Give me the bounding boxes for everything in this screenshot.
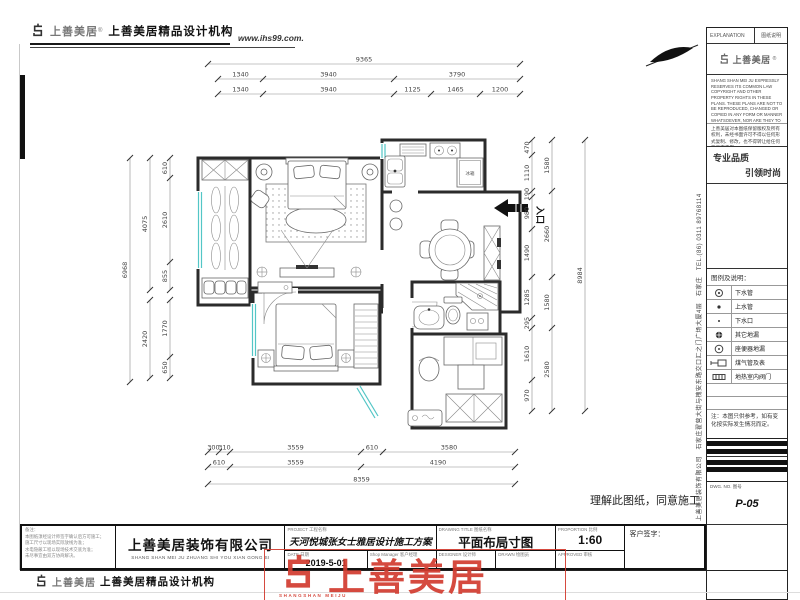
remark-label: 备注：: [25, 527, 38, 532]
bench: [408, 410, 442, 426]
legend-row: 上水管: [707, 300, 787, 314]
stamp-subtext: SHANGSHAN MEIJU: [279, 593, 347, 598]
svg-text:9365: 9365: [356, 56, 373, 64]
brand-logo-icon: [718, 53, 731, 66]
drain-outlet-icon: [707, 314, 732, 327]
company-name: 上善美居装饰有限公司: [128, 534, 273, 554]
stool: [390, 200, 402, 212]
empty-row: [707, 384, 787, 397]
tv: [296, 265, 318, 269]
legend-row: 座便器地漏: [707, 342, 787, 356]
svg-text:3580: 3580: [441, 444, 458, 452]
svg-text:610: 610: [161, 162, 169, 174]
company-address-vertical: 上善美居装饰有限公司 石家庄翟营大街与槐安东路交口汇之门广场大厦4层 石家庄 T…: [694, 27, 703, 521]
remark-cell: 备注： 本图纸须经设计师签字确认后方可施工； 施工尺寸以现场实际放线为准； 水电…: [22, 526, 116, 568]
dim-chain-top-row1: 134039403790: [215, 71, 523, 83]
drain-pipe-icon: [707, 286, 732, 299]
svg-text:1340: 1340: [232, 86, 249, 94]
panel-spacer: [707, 184, 787, 269]
door-label-box: [258, 282, 292, 293]
svg-text:1285: 1285: [523, 289, 531, 306]
svg-text:1580: 1580: [543, 157, 551, 174]
legend-row: 下水口: [707, 314, 787, 328]
footer-logo: 上善美居 上善美居精品设计机构: [34, 574, 215, 589]
agreement-note: 理解此图纸，同意施工: [548, 492, 700, 508]
legend-row: 下水管: [707, 286, 787, 300]
svg-text:855: 855: [161, 270, 169, 282]
svg-text:3790: 3790: [449, 71, 466, 79]
reference-note: 注：本图只供参考，如有变化按实际发生情况而定。: [707, 410, 787, 439]
drawing-sheet: 上善美居® 上善美居精品设计机构 www.ihs99.com.: [0, 0, 800, 600]
svg-text:1110: 1110: [523, 165, 531, 182]
svg-text:470: 470: [523, 141, 531, 153]
floor-plan: 冰箱 入口: [0, 0, 800, 600]
headboard: [274, 366, 338, 371]
svg-text:650: 650: [161, 361, 169, 373]
svg-text:1200: 1200: [492, 86, 509, 94]
svg-text:8984: 8984: [576, 267, 584, 284]
svg-text:3940: 3940: [320, 86, 337, 94]
dim-chain-left-segs-upper: 6102610855: [161, 155, 173, 293]
revision-bars: [707, 439, 787, 482]
company-pinyin: SHANG SHAN MEI JU ZHUANG SHI YOU XIAN GO…: [131, 555, 269, 560]
svg-text:310: 310: [218, 444, 230, 452]
svg-text:2420: 2420: [141, 331, 149, 348]
company-stamp: 上善美居 SHANGSHAN MEIJU: [264, 545, 580, 600]
desk-chair: [419, 357, 439, 381]
svg-text:295: 295: [523, 317, 531, 329]
stamp-text: 上善美居: [328, 547, 488, 600]
dim-chain-top-total: 9365: [205, 56, 523, 68]
north-symbol-icon: [646, 45, 698, 66]
cabinet: [458, 365, 484, 389]
svg-text:2580: 2580: [543, 361, 551, 378]
dim-chain-top-row2: 13403940112514651200: [215, 86, 523, 98]
legend-row: 其它地漏: [707, 328, 787, 342]
svg-text:3559: 3559: [287, 444, 304, 452]
stool: [390, 218, 402, 230]
fridge-label: 冰箱: [466, 170, 475, 177]
explanation-panel: EXPLANATION 图纸说明 上善美居® SHANG SHAN MEI JU…: [706, 27, 788, 600]
dwg-no-cell: DWG. NO. 图号 P-05: [707, 482, 787, 525]
other-floor-drain-icon: [707, 328, 732, 341]
toilet-tank: [444, 297, 462, 303]
dim-chain-left-mid-lower: 2420: [141, 297, 153, 381]
slogan-1: 专业品质: [713, 151, 781, 164]
svg-text:1610: 1610: [523, 346, 531, 363]
svg-text:8359: 8359: [353, 476, 370, 484]
dwg-no-label: DWG. NO. 图号: [710, 484, 742, 490]
svg-text:1465: 1465: [447, 86, 464, 94]
dim-chain-right-total: 8984: [576, 137, 588, 414]
svg-text:4190: 4190: [430, 459, 447, 467]
svg-text:610: 610: [213, 459, 225, 467]
brand-logo-icon: [34, 574, 49, 589]
copyright-text-cn: 上善美居对本图纸保留版权及所有权利，未经书面许可不得以任何形式复制、修改，也不得…: [707, 124, 787, 147]
svg-text:190: 190: [523, 188, 531, 200]
signature-label: 客户签字：: [625, 526, 704, 542]
svg-text:610: 610: [366, 444, 378, 452]
svg-text:3559: 3559: [287, 459, 304, 467]
svg-text:3940: 3940: [320, 71, 337, 79]
dim-chain-left-segs-lower: 1770650: [161, 297, 173, 381]
explanation-title-en: EXPLANATION: [707, 28, 755, 43]
svg-text:980: 980: [523, 207, 531, 219]
legend-row: 煤气管及表: [707, 356, 787, 370]
shoe-cabinet: [484, 226, 500, 280]
dim-chain-bottom-total: 8359: [205, 476, 518, 488]
project-label: PROJECT 工程名称: [285, 526, 435, 534]
empty-row: [707, 397, 787, 410]
legend-row: 地热室内阀门: [707, 370, 787, 384]
legend-title: 图例及说明：: [707, 269, 787, 286]
svg-text:2610: 2610: [161, 212, 169, 229]
dim-chain-left-total: 6968: [121, 155, 133, 385]
gas-pipe-meter-icon: [707, 356, 732, 369]
dim-chain-left-mid-upper: 4075: [141, 155, 153, 293]
svg-text:6968: 6968: [121, 262, 129, 279]
svg-text:2660: 2660: [543, 226, 551, 243]
slogan-block: 专业品质 引领时尚: [707, 147, 787, 184]
entry-label: 入口: [534, 205, 545, 224]
supply-pipe-icon: [707, 300, 732, 313]
signature-cell: 客户签字：: [625, 526, 704, 568]
svg-text:4075: 4075: [141, 216, 149, 233]
dwg-no-value: P-05: [707, 498, 787, 510]
dim-chain-right-segs: 4701110190980149012852951610970: [523, 137, 535, 414]
copyright-text-en: SHANG SHAN MEI JU EXPRESSLY RESERVES ITS…: [707, 75, 787, 124]
svg-text:1770: 1770: [161, 320, 169, 337]
toilet-floor-drain-icon: [707, 342, 732, 355]
svg-text:1580: 1580: [543, 294, 551, 311]
svg-text:1340: 1340: [232, 71, 249, 79]
company-cell: 上善美居装饰有限公司 SHANG SHAN MEI JU ZHUANG SHI …: [116, 526, 285, 568]
explanation-title-cn: 图纸说明: [755, 32, 787, 39]
dim-chain-bottom-row2: 61035594190: [205, 459, 518, 471]
wardrobe: [354, 304, 378, 368]
svg-text:1125: 1125: [404, 86, 421, 94]
dim-chain-right-mid: 1580266015802580: [543, 137, 555, 414]
floor-heating-valve-icon: [707, 370, 732, 383]
svg-text:970: 970: [523, 389, 531, 401]
svg-text:1490: 1490: [523, 245, 531, 262]
panel-logo: 上善美居®: [707, 44, 787, 75]
dim-chain-bottom-row1: 30031035596103580: [205, 444, 518, 456]
slogan-2: 引领时尚: [713, 166, 781, 179]
tv-cabinet: [280, 268, 334, 277]
